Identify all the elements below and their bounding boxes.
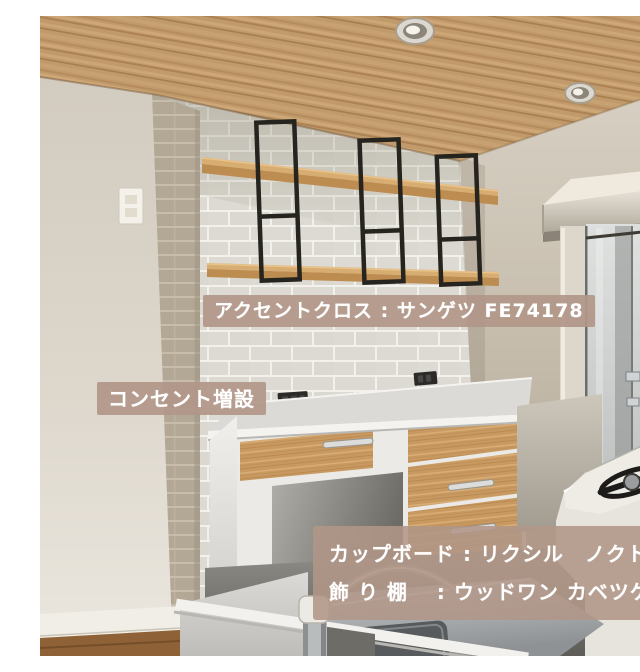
downlight-icon bbox=[396, 18, 434, 44]
label-accent-cloth: アクセントクロス : サンゲツ FE74178 bbox=[203, 295, 595, 327]
wall-outlet bbox=[119, 188, 143, 224]
label-outlet-added-text: コンセント増設 bbox=[108, 387, 255, 411]
label-product-specs: カップボード : リクシル ノクト 飾 り 棚 : ウッドワン カベツケ bbox=[313, 526, 640, 620]
downlight-icon bbox=[565, 83, 595, 103]
label-accent-cloth-text: アクセントクロス : サンゲツ FE74178 bbox=[214, 300, 584, 322]
label-shelf-spec: 飾 り 棚 : ウッドワン カベツケ bbox=[329, 573, 640, 611]
kitchen-photo: アクセントクロス : サンゲツ FE74178 コンセント増設 カップボード :… bbox=[40, 16, 640, 656]
counter-outlet-right bbox=[414, 371, 438, 386]
label-cupboard-spec: カップボード : リクシル ノクト bbox=[329, 535, 640, 573]
label-outlet-added: コンセント増設 bbox=[97, 382, 266, 415]
